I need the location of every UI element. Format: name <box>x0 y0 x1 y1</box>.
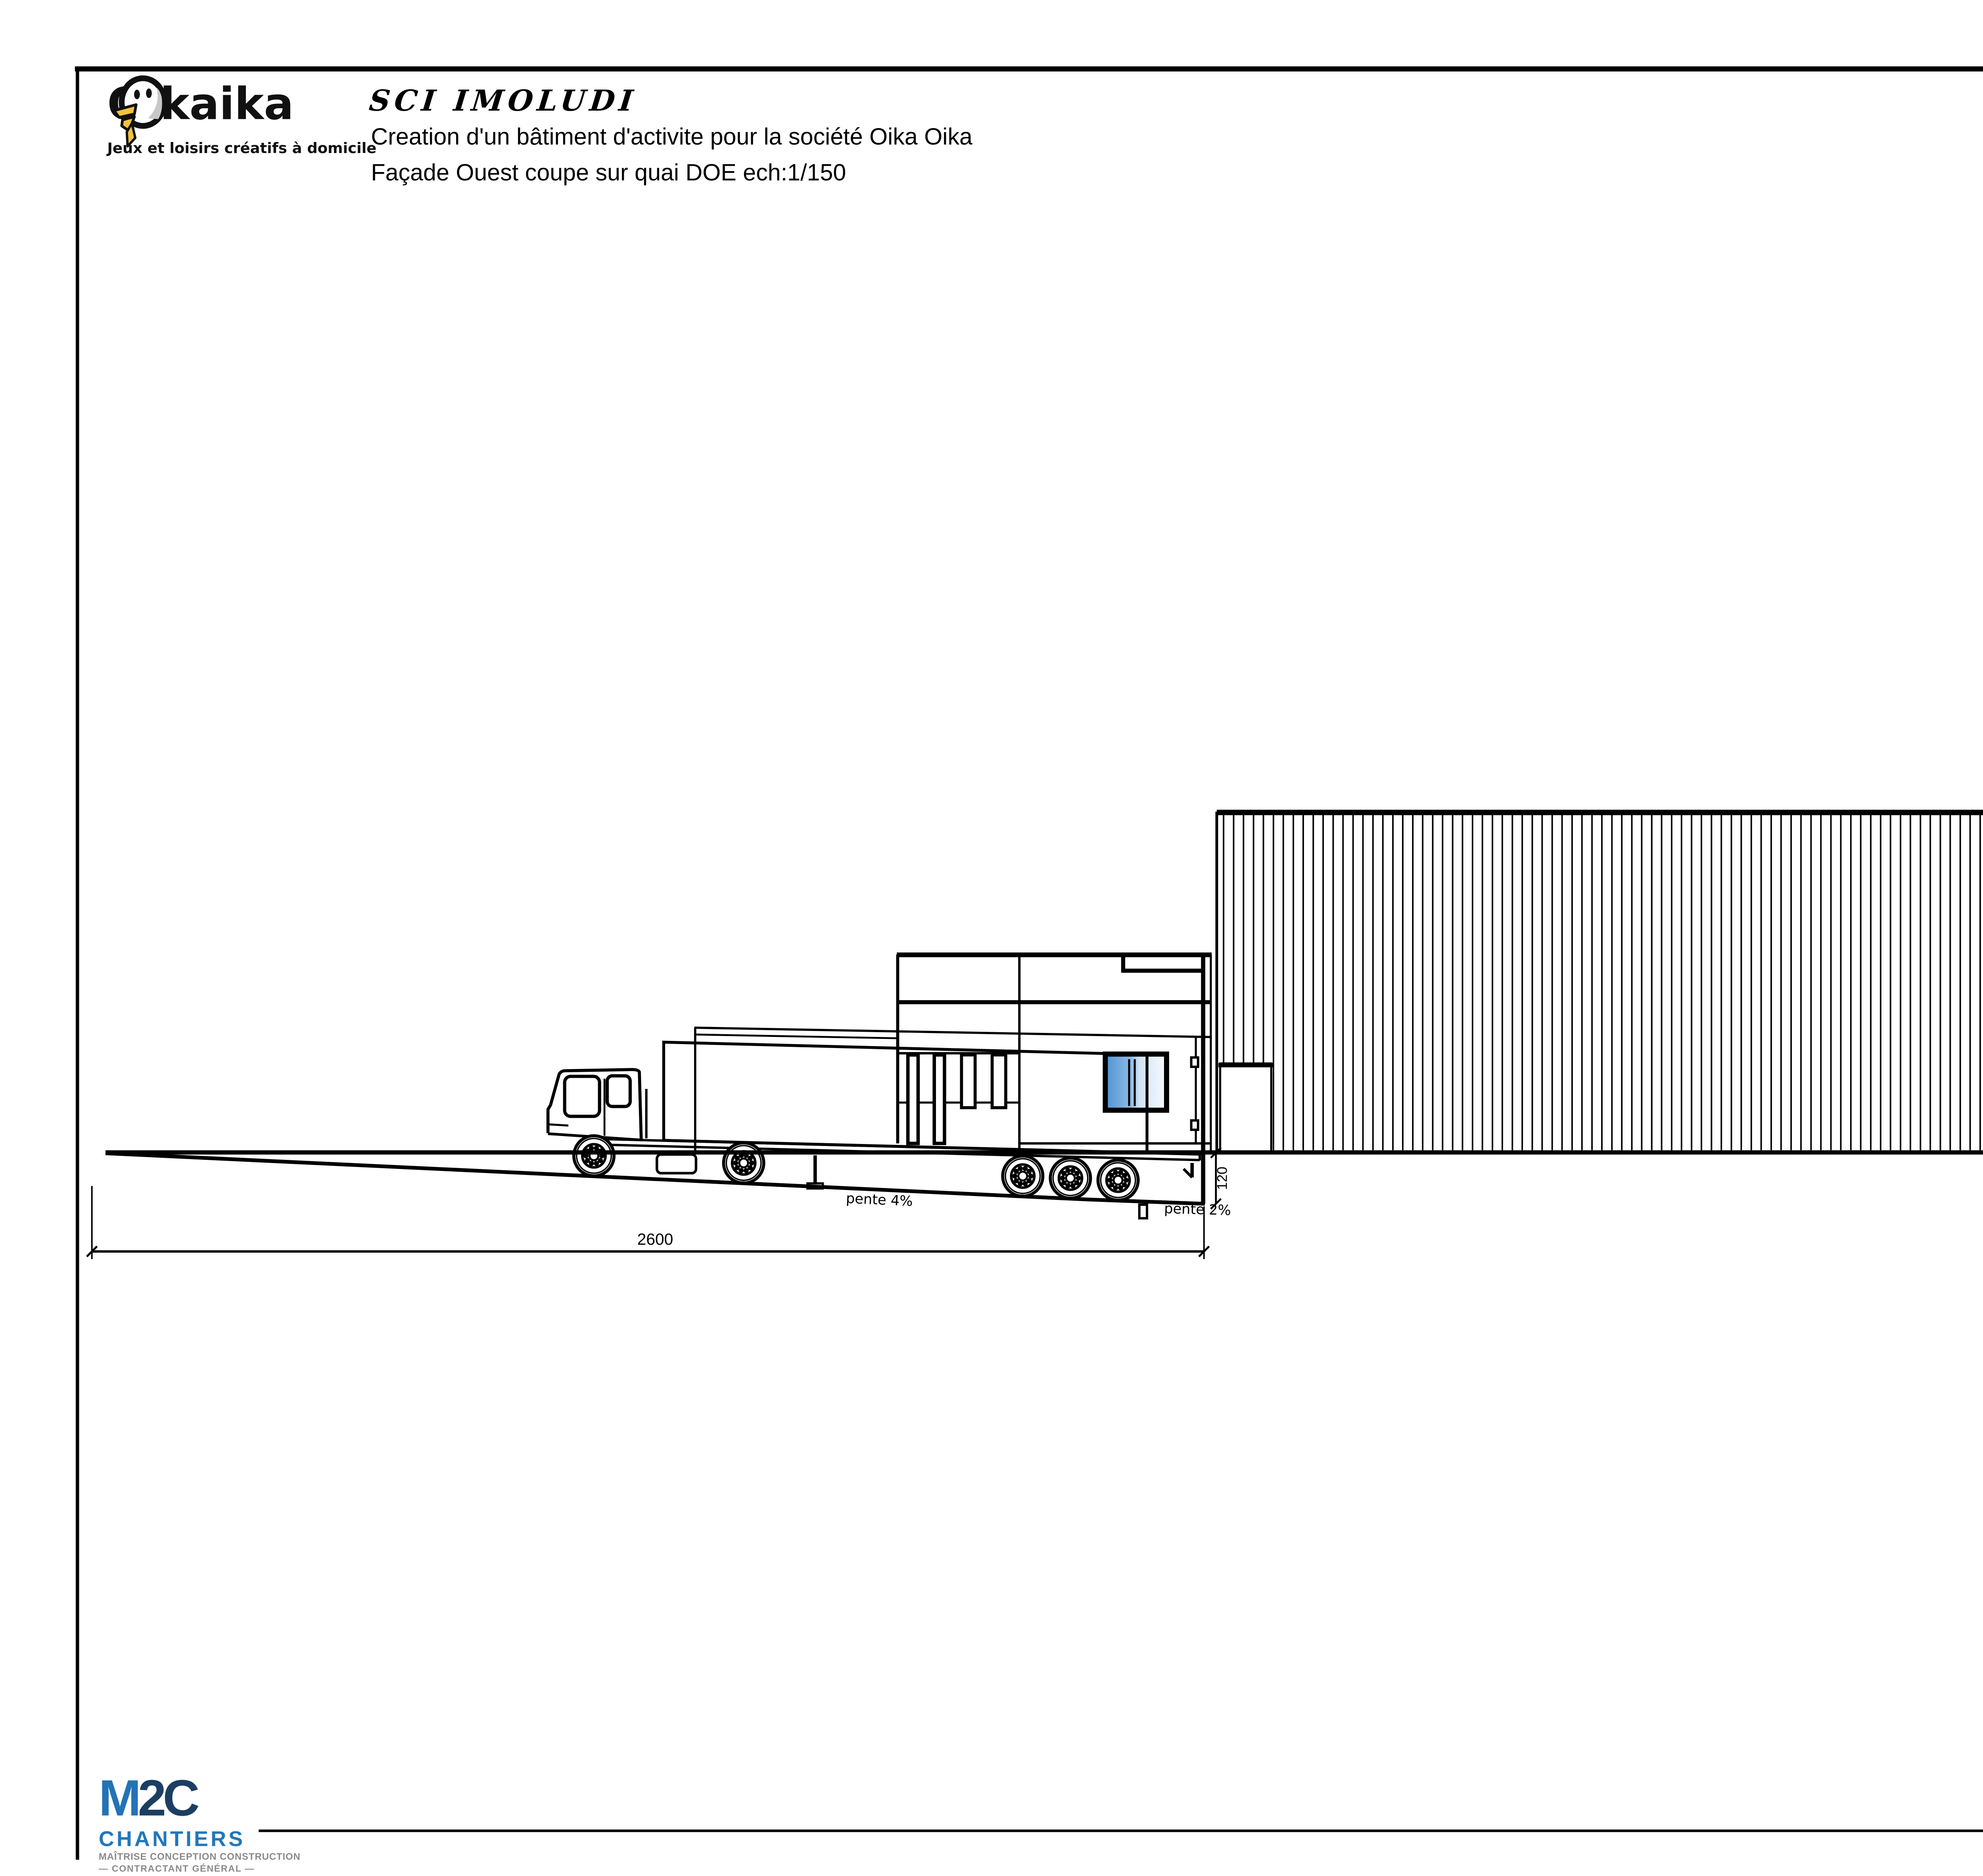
m2c-subtitle-2: — CONTRACTANT GÉNÉRAL — <box>99 1867 303 1876</box>
door-handle <box>1191 1058 1198 1067</box>
m2c-subtitle-1: MAÎTRISE CONCEPTION CONSTRUCTION <box>99 1855 303 1864</box>
client-name: SCI IMOLUDI <box>367 85 972 119</box>
elevation-drawing: 2600 120 500 814 <box>0 0 1983 1860</box>
cab-window <box>565 1076 600 1116</box>
slope-label-2: pente 2% <box>1164 1200 1231 1219</box>
dock-window <box>1105 1054 1166 1110</box>
mud-flap <box>1139 1205 1147 1218</box>
building-door <box>1218 1064 1273 1152</box>
door-handle <box>1191 1121 1198 1130</box>
m2c-wordmark: M2C <box>99 1774 303 1826</box>
cab-window <box>607 1076 630 1106</box>
chick-icon <box>111 75 172 150</box>
project-title: Creation d'un bâtiment d'activite pour l… <box>371 124 972 149</box>
parapet-notch <box>1123 957 1205 971</box>
truck-cab <box>548 1069 646 1140</box>
m2c-chantiers: CHANTIERS <box>99 1829 303 1851</box>
main-building <box>1217 812 1983 1152</box>
dim-120: 120 <box>1211 1148 1230 1209</box>
toolbox <box>657 1154 696 1173</box>
dim-120-label: 120 <box>1215 1167 1230 1190</box>
title-block: SCI IMOLUDI Creation d'un bâtiment d'act… <box>371 85 972 186</box>
door-post <box>992 1055 1006 1108</box>
dim-2600-label: 2600 <box>637 1230 673 1248</box>
oika-logo: Oika ika Jeux et loisirs créatifs à domi… <box>107 75 362 158</box>
slope-label-4: pente 4% <box>846 1190 913 1210</box>
cladding-lines <box>1224 815 1983 1150</box>
door-jamb <box>934 1055 945 1143</box>
drawing-sheet: 2600 120 500 814 <box>0 0 1983 1860</box>
m2c-logo: M2C CHANTIERS MAÎTRISE CONCEPTION CONSTR… <box>99 1774 303 1876</box>
door-jamb <box>908 1055 918 1143</box>
drawing-title: Façade Ouest coupe sur quai DOE ech:1/15… <box>371 160 972 185</box>
door-post <box>961 1055 975 1108</box>
trailer-box <box>664 1042 1147 1153</box>
oika-word-2: ika <box>219 75 294 136</box>
sheet-border <box>75 68 1983 1860</box>
